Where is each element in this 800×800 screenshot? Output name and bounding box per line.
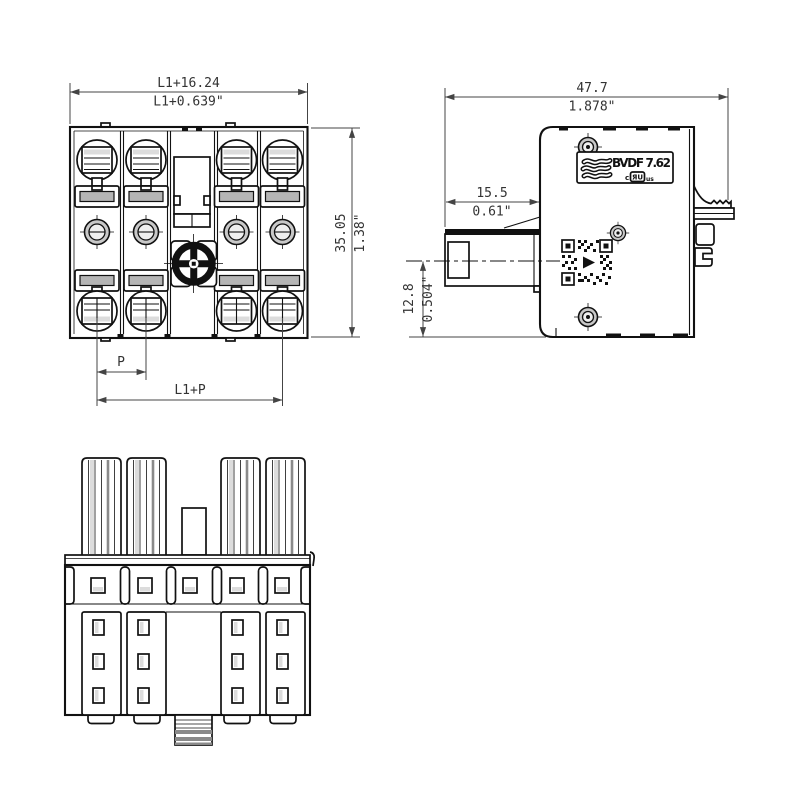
side-lug [696,224,714,245]
dim-text-axis-mm: 12.8 [402,283,417,314]
dim-text-terminal-span: L1+P [174,383,205,398]
contact-opening [275,578,289,593]
channel-slot [213,567,222,604]
contact-opening [91,578,105,593]
weidmueller-logo-icon [583,161,610,177]
contact-column-2 [127,612,166,715]
dim-text-front-height-mm: 35.05 [334,213,349,252]
center-tab [182,508,206,555]
contact-opening [230,578,244,593]
connector-engineering-drawing: L1+16.24 L1+0.639" 35.05 1.38" P L1+P [0,0,800,800]
dim-text-pitch: P [117,355,125,370]
product-name-text: BVDF 7.62 [612,156,671,170]
dim-text-flange-in: 0.61" [472,205,511,220]
contact-column-1 [82,612,121,715]
svg-text:ЯU: ЯU [632,174,643,182]
dim-text-front-width-mm: L1+16.24 [157,76,220,91]
contact-column-3 [221,612,260,715]
dim-text-side-width-in: 1.878" [569,100,616,115]
channel-slot [259,567,268,604]
channel-slot [121,567,130,604]
dim-text-front-width-in: L1+0.639" [153,95,223,110]
contact-opening [183,578,197,593]
dim-text-axis-in: 0.504" [421,276,436,323]
svg-text:c: c [625,174,629,182]
dim-text-side-width-mm: 47.7 [576,81,607,96]
technical-drawing-page: L1+16.24 L1+0.639" 35.05 1.38" P L1+P [0,0,800,800]
contact-opening [138,578,152,593]
channel-slot [167,567,176,604]
dim-text-front-height-in: 1.38" [353,213,368,252]
dim-text-flange-mm: 15.5 [476,186,507,201]
svg-text:us: us [646,176,654,183]
center-fixing-screw [164,234,223,293]
center-plug [175,715,212,745]
contact-column-4 [266,612,305,715]
product-label: BVDF 7.62 c ЯU us [577,152,673,183]
